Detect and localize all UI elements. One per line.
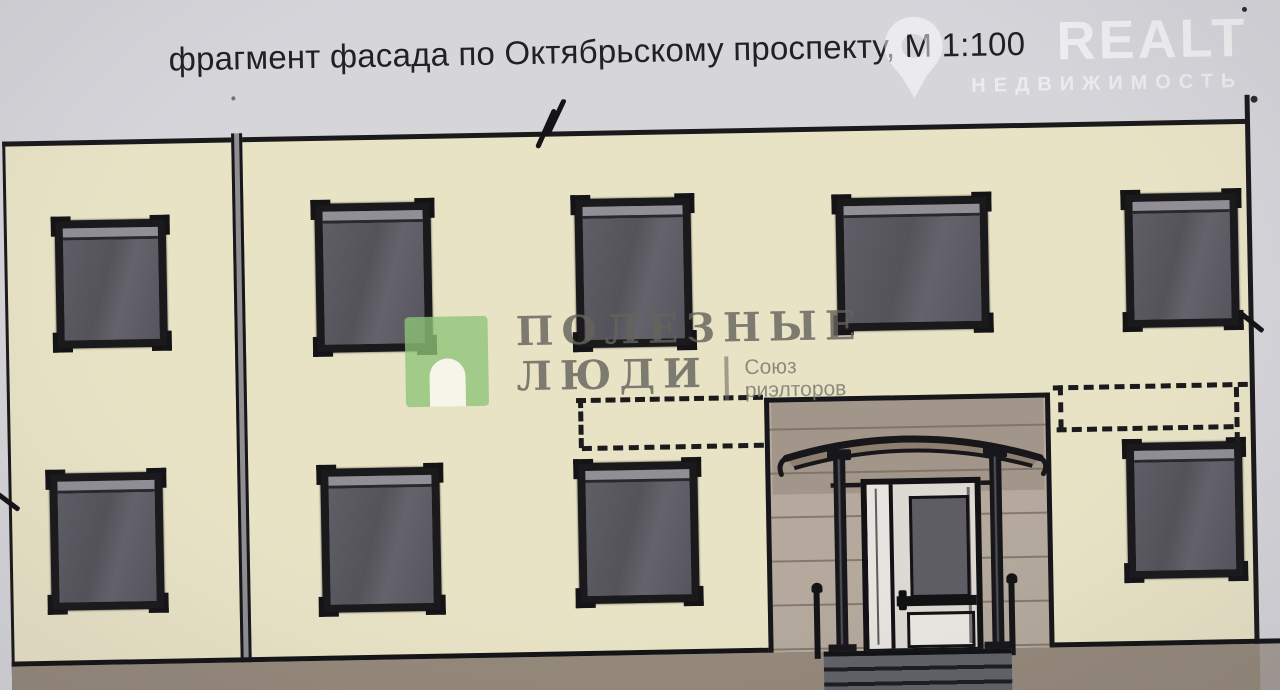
railing-post — [814, 591, 821, 659]
window-glass — [58, 492, 157, 603]
dashed-line — [1234, 387, 1240, 442]
paper-sheet: фрагмент фасада по Октябрьскому проспект… — [0, 0, 1280, 690]
watermark-brand-line2: ЛЮДИ — [516, 354, 709, 398]
door-sidelight — [867, 484, 896, 648]
watermark-realt-subtitle: НЕДВИЖИМОСТЬ — [971, 71, 1243, 96]
window-glass — [1133, 212, 1232, 320]
watermark-divider — [724, 356, 729, 400]
window — [1126, 441, 1244, 579]
window-glass — [63, 239, 160, 341]
ground-strip-right — [1260, 643, 1280, 690]
watermark-realt-brand: REALT — [1056, 11, 1248, 68]
window — [1124, 192, 1239, 328]
watermark-sub-line1: Союз — [744, 356, 797, 378]
paper-speck — [231, 96, 235, 100]
watermark-brand-line1: ПОЛЕЗНЫЕ — [515, 306, 863, 352]
paper-speck — [1251, 96, 1258, 103]
roof-break-mark-icon — [533, 99, 570, 155]
arch-door-icon — [429, 358, 466, 407]
door-midrail — [897, 595, 977, 606]
door-bottom-panel — [907, 611, 976, 648]
window-glass — [329, 487, 434, 605]
poleznye-lyudi-logo — [404, 316, 489, 408]
map-pin-icon — [882, 14, 946, 115]
entrance-steps — [824, 648, 1013, 690]
window — [320, 467, 442, 613]
window — [577, 461, 700, 604]
window-glass — [586, 481, 692, 596]
scanned-drawing-photo: фрагмент фасада по Октябрьскому проспект… — [0, 0, 1280, 690]
window — [49, 472, 164, 611]
window-glass — [1134, 461, 1236, 571]
window — [55, 219, 168, 349]
paper-speck — [1242, 7, 1247, 12]
door-glass — [909, 495, 971, 598]
dashed-line — [578, 398, 584, 448]
entrance-door — [860, 477, 983, 655]
window-glass — [844, 216, 982, 323]
watermark-sub-line2: риэлторов — [745, 378, 847, 401]
